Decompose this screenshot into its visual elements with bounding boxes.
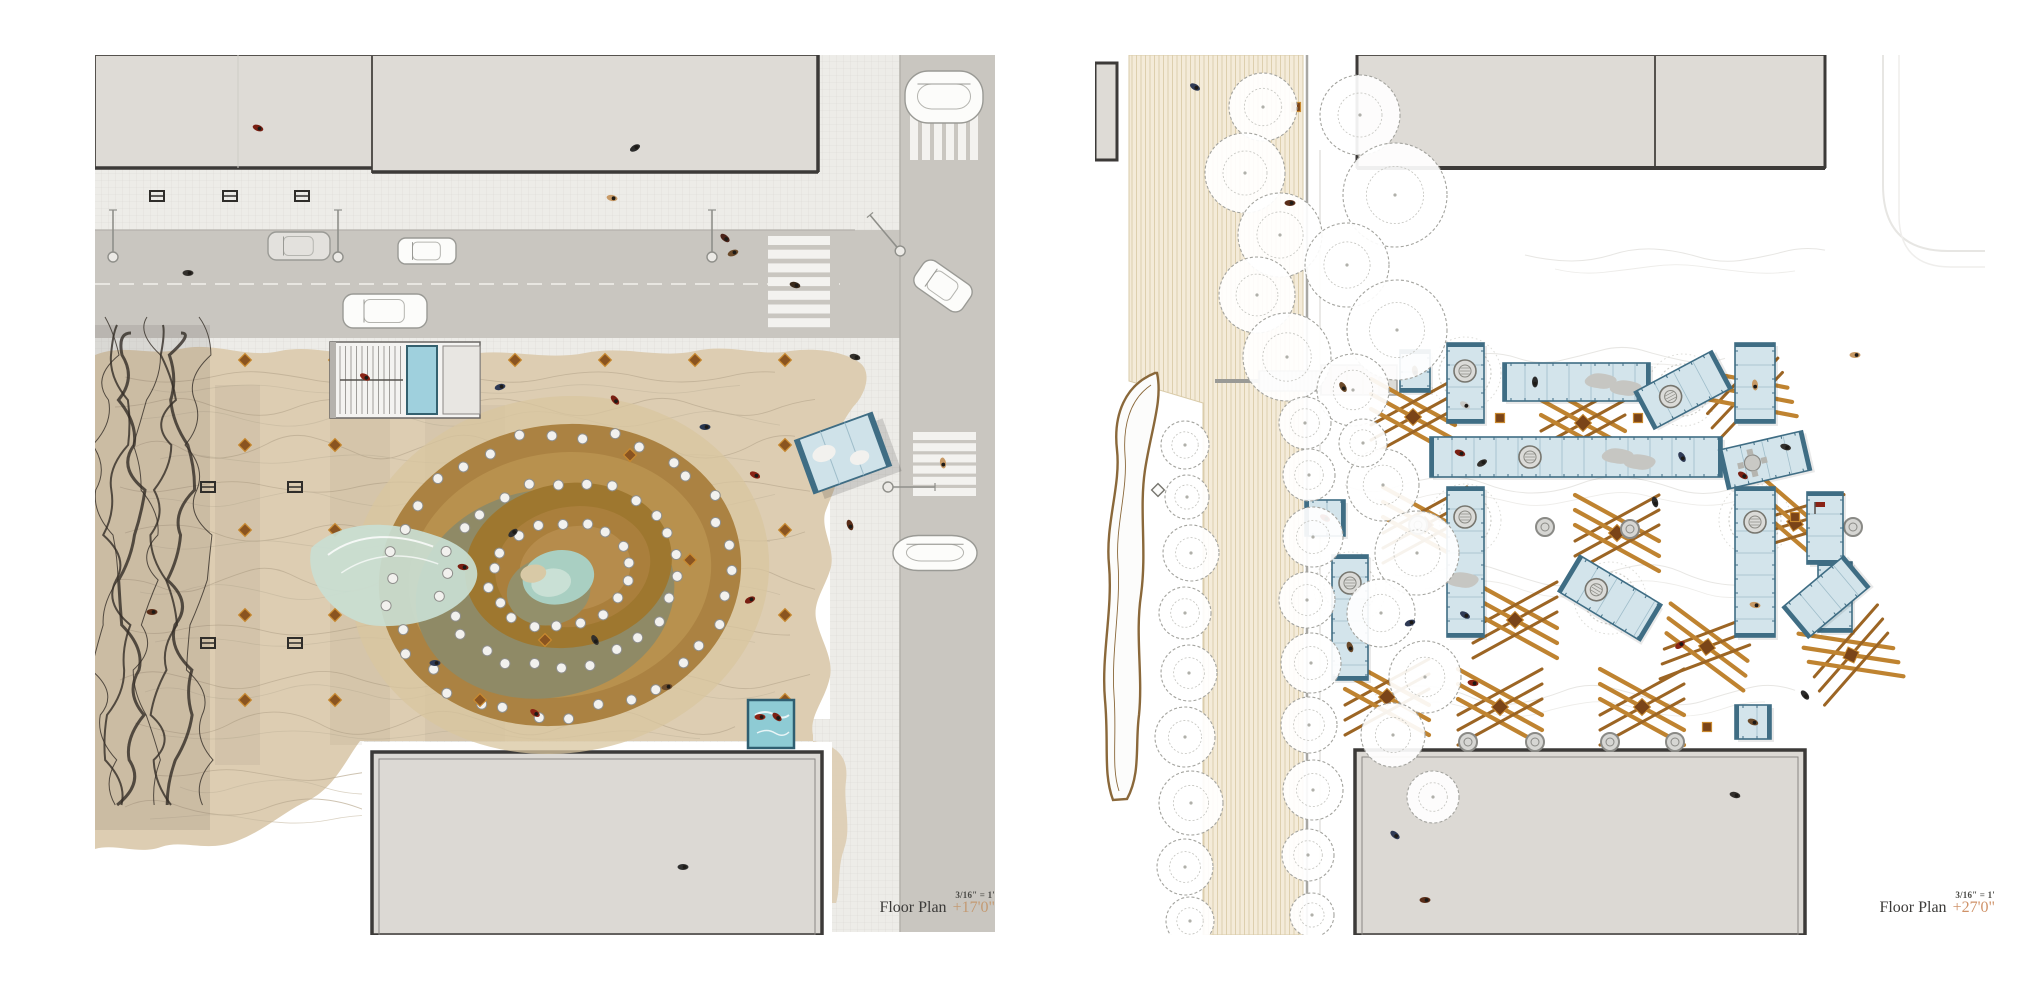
tree-symbol	[1159, 771, 1223, 835]
person-figure	[147, 609, 158, 615]
left-plan-title: Floor Plan	[879, 899, 946, 916]
street-corner-lines	[1883, 55, 1985, 267]
person-figure	[183, 270, 194, 276]
tree-symbol	[1389, 641, 1461, 713]
tree-symbol	[1339, 419, 1387, 467]
tree-symbol	[1157, 839, 1213, 895]
tree-symbol	[1283, 507, 1343, 567]
person-figure	[1799, 689, 1811, 701]
tree-symbol	[1163, 525, 1219, 581]
car-symbol	[398, 238, 456, 264]
tree-symbol	[1229, 73, 1297, 141]
person-figure	[678, 864, 689, 870]
tree-symbol	[1161, 645, 1217, 701]
tree-symbol	[1290, 893, 1334, 935]
left-floor-plan-drawing	[95, 55, 995, 935]
tree-symbol	[1155, 707, 1215, 767]
person-figure	[755, 714, 766, 720]
tree-symbol	[1281, 697, 1337, 753]
top-buildings	[95, 55, 818, 172]
glass-module	[1556, 555, 1664, 645]
person-figure	[1420, 897, 1431, 903]
right-floor-plan-drawing	[1095, 55, 1985, 935]
tree-symbol	[1407, 771, 1459, 823]
right-plan-elevation: +27'0"	[1953, 899, 1995, 916]
drawing-sheet: 3/16" = 1' Floor Plan+17'0" 3/16" = 1' F…	[0, 0, 2033, 1000]
car-symbol	[343, 294, 427, 328]
left-plan-elevation: +17'0"	[953, 899, 995, 916]
tree-symbol	[1161, 421, 1209, 469]
car-symbol	[268, 232, 330, 260]
tree-symbol	[1361, 703, 1425, 767]
tree-symbol	[1283, 449, 1335, 501]
person-figure	[430, 660, 441, 666]
tree-symbol	[1283, 760, 1343, 820]
reflecting-pool	[748, 700, 794, 748]
glass-module	[1447, 343, 1487, 426]
tree-symbol	[1279, 572, 1335, 628]
tree-symbol	[1320, 75, 1400, 155]
glass-module	[1503, 363, 1653, 404]
bottom-building	[362, 742, 832, 935]
car-symbol	[905, 71, 983, 123]
person-figure	[1532, 377, 1538, 388]
glass-module	[1719, 430, 1815, 492]
person-figure	[1850, 352, 1861, 358]
glass-module	[1807, 492, 1846, 567]
glass-module	[1735, 487, 1778, 640]
left-plan-label: 3/16" = 1' Floor Plan+17'0"	[795, 891, 995, 917]
tree-symbol	[1159, 587, 1211, 639]
terrain-striations	[95, 317, 213, 830]
person-figure	[700, 424, 711, 430]
glass-module	[1735, 343, 1778, 426]
tree-symbol	[1282, 829, 1334, 881]
berm-outline	[1104, 373, 1158, 800]
right-plan-title: Floor Plan	[1879, 899, 1946, 916]
right-plan-label: 3/16" = 1' Floor Plan+27'0"	[1795, 891, 1995, 917]
car-symbol	[893, 536, 977, 571]
tree-symbol	[1279, 397, 1331, 449]
entrance-stair	[330, 342, 480, 418]
glass-module	[1430, 437, 1725, 480]
tree-symbol	[1347, 579, 1415, 647]
glass-module	[1735, 705, 1774, 742]
person-figure	[1285, 200, 1296, 206]
tree-symbol	[1281, 633, 1341, 693]
tree-symbol	[1165, 475, 1209, 519]
